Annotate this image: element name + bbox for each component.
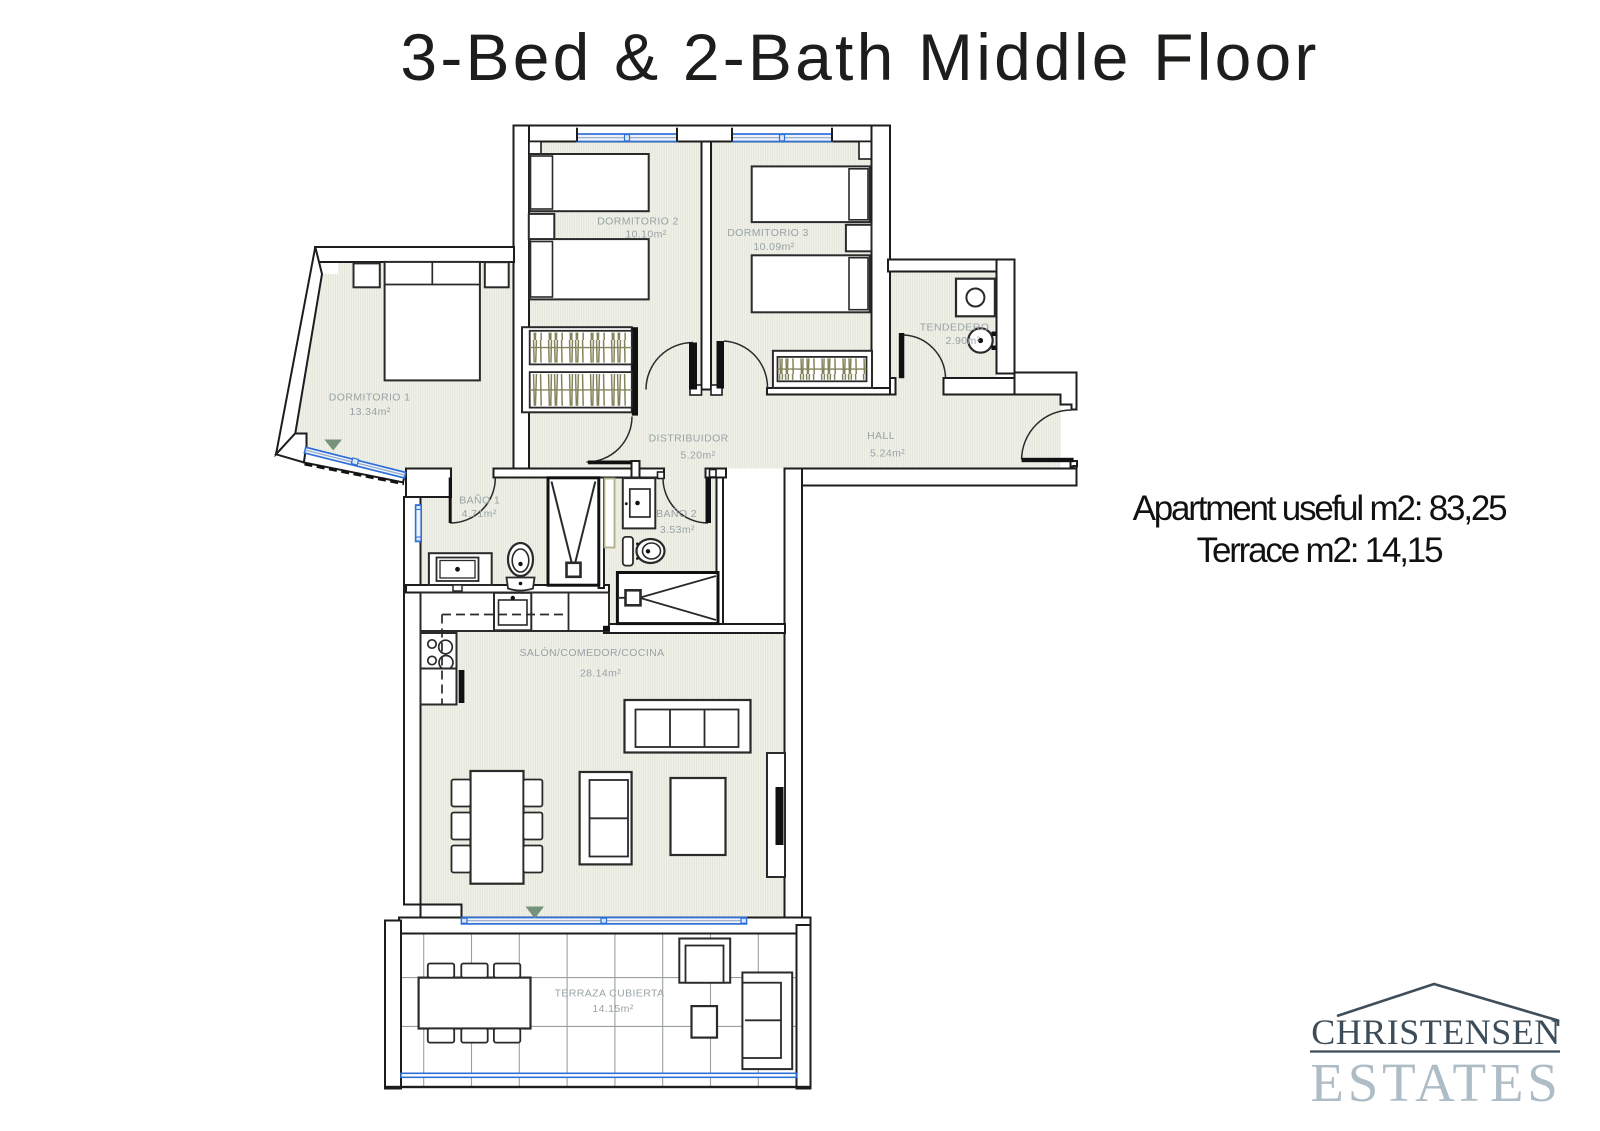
- svg-text:DORMITORIO 1: DORMITORIO 1: [329, 392, 411, 404]
- svg-text:TERRAZA CUBIERTA: TERRAZA CUBIERTA: [555, 988, 665, 1000]
- svg-text:2.90m²: 2.90m²: [945, 335, 980, 347]
- svg-text:Apartment useful m2: 83,25: Apartment useful m2: 83,25: [1133, 489, 1506, 528]
- svg-text:10.10m²: 10.10m²: [625, 229, 666, 241]
- svg-text:14.15m²: 14.15m²: [592, 1003, 633, 1015]
- svg-text:CHRISTENSEN: CHRISTENSEN: [1311, 1012, 1561, 1052]
- svg-text:Terrace m2: 14,15: Terrace m2: 14,15: [1197, 531, 1442, 570]
- svg-text:10.09m²: 10.09m²: [753, 241, 794, 253]
- svg-text:13.34m²: 13.34m²: [349, 406, 390, 418]
- svg-text:28.14m²: 28.14m²: [580, 668, 621, 680]
- svg-text:DORMITORIO 3: DORMITORIO 3: [727, 227, 809, 239]
- svg-text:TENDEDERO: TENDEDERO: [920, 322, 990, 334]
- svg-text:4.71m²: 4.71m²: [462, 508, 497, 520]
- svg-text:ESTATES: ESTATES: [1310, 1052, 1561, 1113]
- svg-text:BAÑO 1: BAÑO 1: [459, 494, 500, 507]
- svg-text:5.24m²: 5.24m²: [870, 448, 905, 460]
- svg-text:DISTRIBUIDOR: DISTRIBUIDOR: [649, 433, 729, 445]
- svg-text:BAÑO 2: BAÑO 2: [656, 507, 697, 520]
- svg-text:HALL: HALL: [867, 430, 895, 442]
- svg-text:SALÓN/COMEDOR/COCINA: SALÓN/COMEDOR/COCINA: [519, 646, 664, 659]
- svg-text:3.53m²: 3.53m²: [660, 524, 695, 536]
- svg-text:3-Bed & 2-Bath Middle Floor: 3-Bed & 2-Bath Middle Floor: [400, 20, 1319, 94]
- svg-text:DORMITORIO 2: DORMITORIO 2: [597, 216, 679, 228]
- svg-text:5.20m²: 5.20m²: [680, 449, 715, 461]
